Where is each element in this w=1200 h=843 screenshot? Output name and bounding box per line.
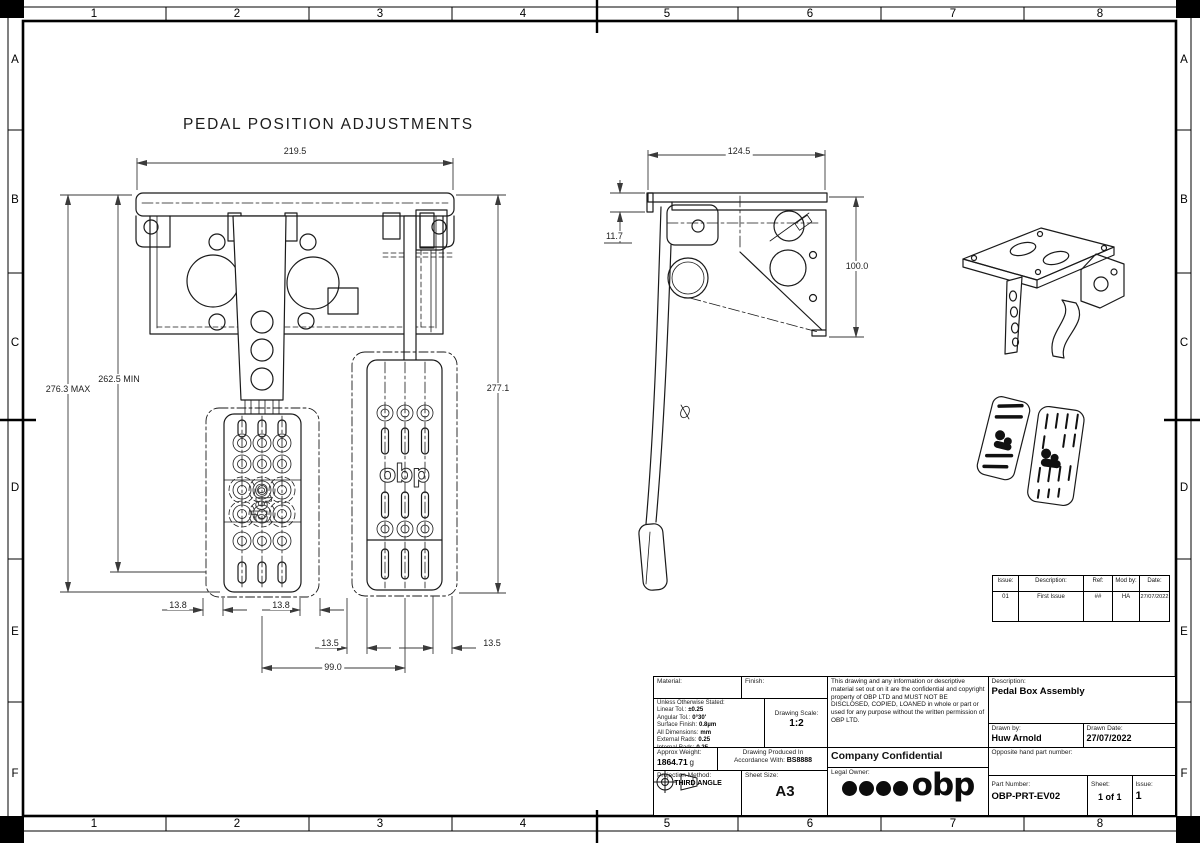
border-row-label: E xyxy=(11,626,19,638)
finish-label: Finish: xyxy=(745,678,764,685)
revision-table: Issue: Description: Ref: Mod by: Date: 0… xyxy=(992,575,1170,622)
tolerance-value: ±0.25 xyxy=(688,707,703,715)
revision-cell-modby: HA xyxy=(1112,591,1140,622)
drawn-by-cell: Drawn by: Huw Arnold xyxy=(988,723,1084,749)
border-col-label: 4 xyxy=(520,8,526,20)
drawn-by-label: Drawn by: xyxy=(992,725,1080,733)
border-col-label: 1 xyxy=(91,818,97,830)
sheet-size-label: Sheet Size: xyxy=(745,772,825,780)
border-col-label: 7 xyxy=(950,8,956,20)
revision-cell-ref: ## xyxy=(1083,591,1113,622)
drawn-date-label: Drawn Date: xyxy=(1087,725,1173,733)
sheet-size-value: A3 xyxy=(745,783,825,802)
border-row-label: D xyxy=(11,482,19,494)
produced-standard: BS8888 xyxy=(787,757,812,764)
dim-front-right-height: 277.1 xyxy=(485,383,512,393)
approx-weight-unit: g xyxy=(690,758,694,767)
part-number-cell: Part Number: OBP-PRT-EV02 xyxy=(988,775,1089,817)
dim-side-flange: 11.7 xyxy=(604,231,625,241)
isometric-view xyxy=(963,228,1124,507)
tolerance-value: mm xyxy=(700,730,711,738)
approx-weight-value: 1864.71 xyxy=(657,757,688,767)
projection-method-cell: Projection Method: THIRD ANGLE xyxy=(653,770,743,816)
border-col-label: 4 xyxy=(520,818,526,830)
approx-weight-label: Approx Weight: xyxy=(657,749,714,757)
border-row-label: C xyxy=(11,337,19,349)
revision-header-ref: Ref: xyxy=(1083,575,1113,592)
drawing-scale-label: Drawing Scale: xyxy=(768,710,825,718)
dim-front-width: 219.5 xyxy=(282,146,309,156)
obp-logo-dot xyxy=(842,781,857,796)
drawing-scale-cell: Drawing Scale: 1:2 xyxy=(764,698,829,749)
drawn-date-cell: Drawn Date: 27/07/2022 xyxy=(1083,723,1177,749)
dim-side-width: 124.5 xyxy=(726,146,753,156)
description-cell: Description: Pedal Box Assembly xyxy=(988,676,1177,724)
obp-logo-dot xyxy=(876,781,891,796)
issue-value: 1 xyxy=(1136,790,1173,804)
border-col-label: 6 xyxy=(807,8,813,20)
copyright-notice: This drawing and any information or desc… xyxy=(831,678,985,725)
tolerance-label: External Rads: xyxy=(657,737,696,745)
border-row-label: C xyxy=(1180,337,1188,349)
finish-cell: Finish: xyxy=(741,676,829,699)
sheet-cell: Sheet: 1 of 1 xyxy=(1087,775,1133,817)
border-row-label: A xyxy=(1180,54,1188,66)
view-title: PEDAL POSITION ADJUSTMENTS xyxy=(183,116,474,134)
border-col-label: 2 xyxy=(234,8,240,20)
dim-side-height: 100.0 xyxy=(844,261,871,271)
obp-logo-dot xyxy=(893,781,908,796)
description-label: Description: xyxy=(992,678,1173,686)
border-col-label: 5 xyxy=(664,818,670,830)
side-view-dimensions xyxy=(604,150,864,337)
part-number-label: Part Number: xyxy=(992,781,1085,789)
revision-header-date: Date: xyxy=(1139,575,1170,592)
sheet-value: 1 of 1 xyxy=(1091,792,1129,803)
produced-in-accordance-cell: Drawing Produced In Accordance With: BS8… xyxy=(717,747,829,771)
side-view xyxy=(638,193,827,591)
dim-adj-left-a: 13.8 xyxy=(167,600,189,610)
issue-label: Issue: xyxy=(1136,781,1173,789)
material-cell: Material: xyxy=(653,676,743,699)
approx-weight-cell: Approx Weight: 1864.71 g xyxy=(653,747,718,771)
drawing-sheet: obp obp xyxy=(0,0,1200,843)
dim-adj-right-a: 13.5 xyxy=(319,638,341,648)
drawn-by-value: Huw Arnold xyxy=(992,733,1080,744)
drawing-scale-value: 1:2 xyxy=(768,718,825,731)
dim-front-max: 276.3 MAX xyxy=(44,384,93,394)
third-angle-projection-icon xyxy=(654,771,700,793)
left-pad-obp-logo: obp xyxy=(251,483,275,523)
border-row-label: F xyxy=(1180,768,1187,780)
tolerances-cell: Unless Otherwise Stated: Linear Tol.:±0.… xyxy=(653,698,766,749)
tolerance-value: 0.25 xyxy=(698,737,710,745)
tolerance-label: Angular Tol.: xyxy=(657,715,690,723)
border-col-label: 8 xyxy=(1097,818,1103,830)
legal-owner-cell: Legal Owner: obp xyxy=(827,767,989,817)
front-view: obp obp xyxy=(136,193,457,597)
obp-logo: obp xyxy=(831,779,985,798)
border-row-label: A xyxy=(11,54,19,66)
border-row-label: D xyxy=(1180,482,1188,494)
border-row-label: E xyxy=(1180,626,1188,638)
border-col-label: 5 xyxy=(664,8,670,20)
opposite-hand-cell: Opposite hand part number: xyxy=(988,747,1177,776)
border-col-label: 1 xyxy=(91,8,97,20)
tolerance-value: 0.8µm xyxy=(699,722,716,730)
dim-pedal-spacing: 99.0 xyxy=(322,662,344,672)
dim-adj-right-b: 13.5 xyxy=(481,638,503,648)
dim-adj-left-b: 13.8 xyxy=(270,600,292,610)
produced-line1: Drawing Produced In xyxy=(721,749,825,757)
sheet-label: Sheet: xyxy=(1091,781,1129,789)
produced-line2: Accordance With: xyxy=(734,757,785,764)
revision-cell-date: 27/07/2022 xyxy=(1139,591,1170,622)
border-row-label: B xyxy=(1180,194,1188,206)
obp-logo-dot xyxy=(859,781,874,796)
border-col-label: 8 xyxy=(1097,8,1103,20)
material-label: Material: xyxy=(657,678,682,685)
opposite-hand-label: Opposite hand part number: xyxy=(992,749,1173,757)
revision-header-description: Description: xyxy=(1018,575,1084,592)
drawn-date-value: 27/07/2022 xyxy=(1087,733,1173,744)
revision-header-issue: Issue: xyxy=(992,575,1019,592)
tolerance-heading: Unless Otherwise Stated: xyxy=(657,700,762,708)
border-col-label: 7 xyxy=(950,818,956,830)
border-col-label: 3 xyxy=(377,8,383,20)
tolerance-value: 0°30' xyxy=(692,715,706,723)
obp-logo-text: obp xyxy=(912,773,975,798)
dim-front-min: 262.5 MIN xyxy=(96,374,142,384)
part-number-value: OBP-PRT-EV02 xyxy=(992,791,1085,803)
company-confidential-cell: Company Confidential xyxy=(827,747,989,768)
tolerance-label: Surface Finish: xyxy=(657,722,697,730)
title-block: Material: Finish: Unless Otherwise State… xyxy=(653,676,1176,816)
border-col-label: 3 xyxy=(377,818,383,830)
copyright-notice-cell: This drawing and any information or desc… xyxy=(827,676,989,749)
border-row-label: B xyxy=(11,194,19,206)
border-col-label: 6 xyxy=(807,818,813,830)
tolerance-label: Linear Tol.: xyxy=(657,707,686,715)
revision-cell-description: First Issue xyxy=(1018,591,1084,622)
revision-header-modby: Mod by: xyxy=(1112,575,1140,592)
issue-cell: Issue: 1 xyxy=(1132,775,1177,817)
sheet-size-cell: Sheet Size: A3 xyxy=(741,770,829,816)
revision-cell-issue: 01 xyxy=(992,591,1019,622)
tolerance-label: All Dimensions: xyxy=(657,730,698,738)
description-value: Pedal Box Assembly xyxy=(992,686,1173,698)
border-row-label: F xyxy=(11,768,18,780)
throttle-pad-obp-logo: obp xyxy=(379,459,429,488)
border-col-label: 2 xyxy=(234,818,240,830)
